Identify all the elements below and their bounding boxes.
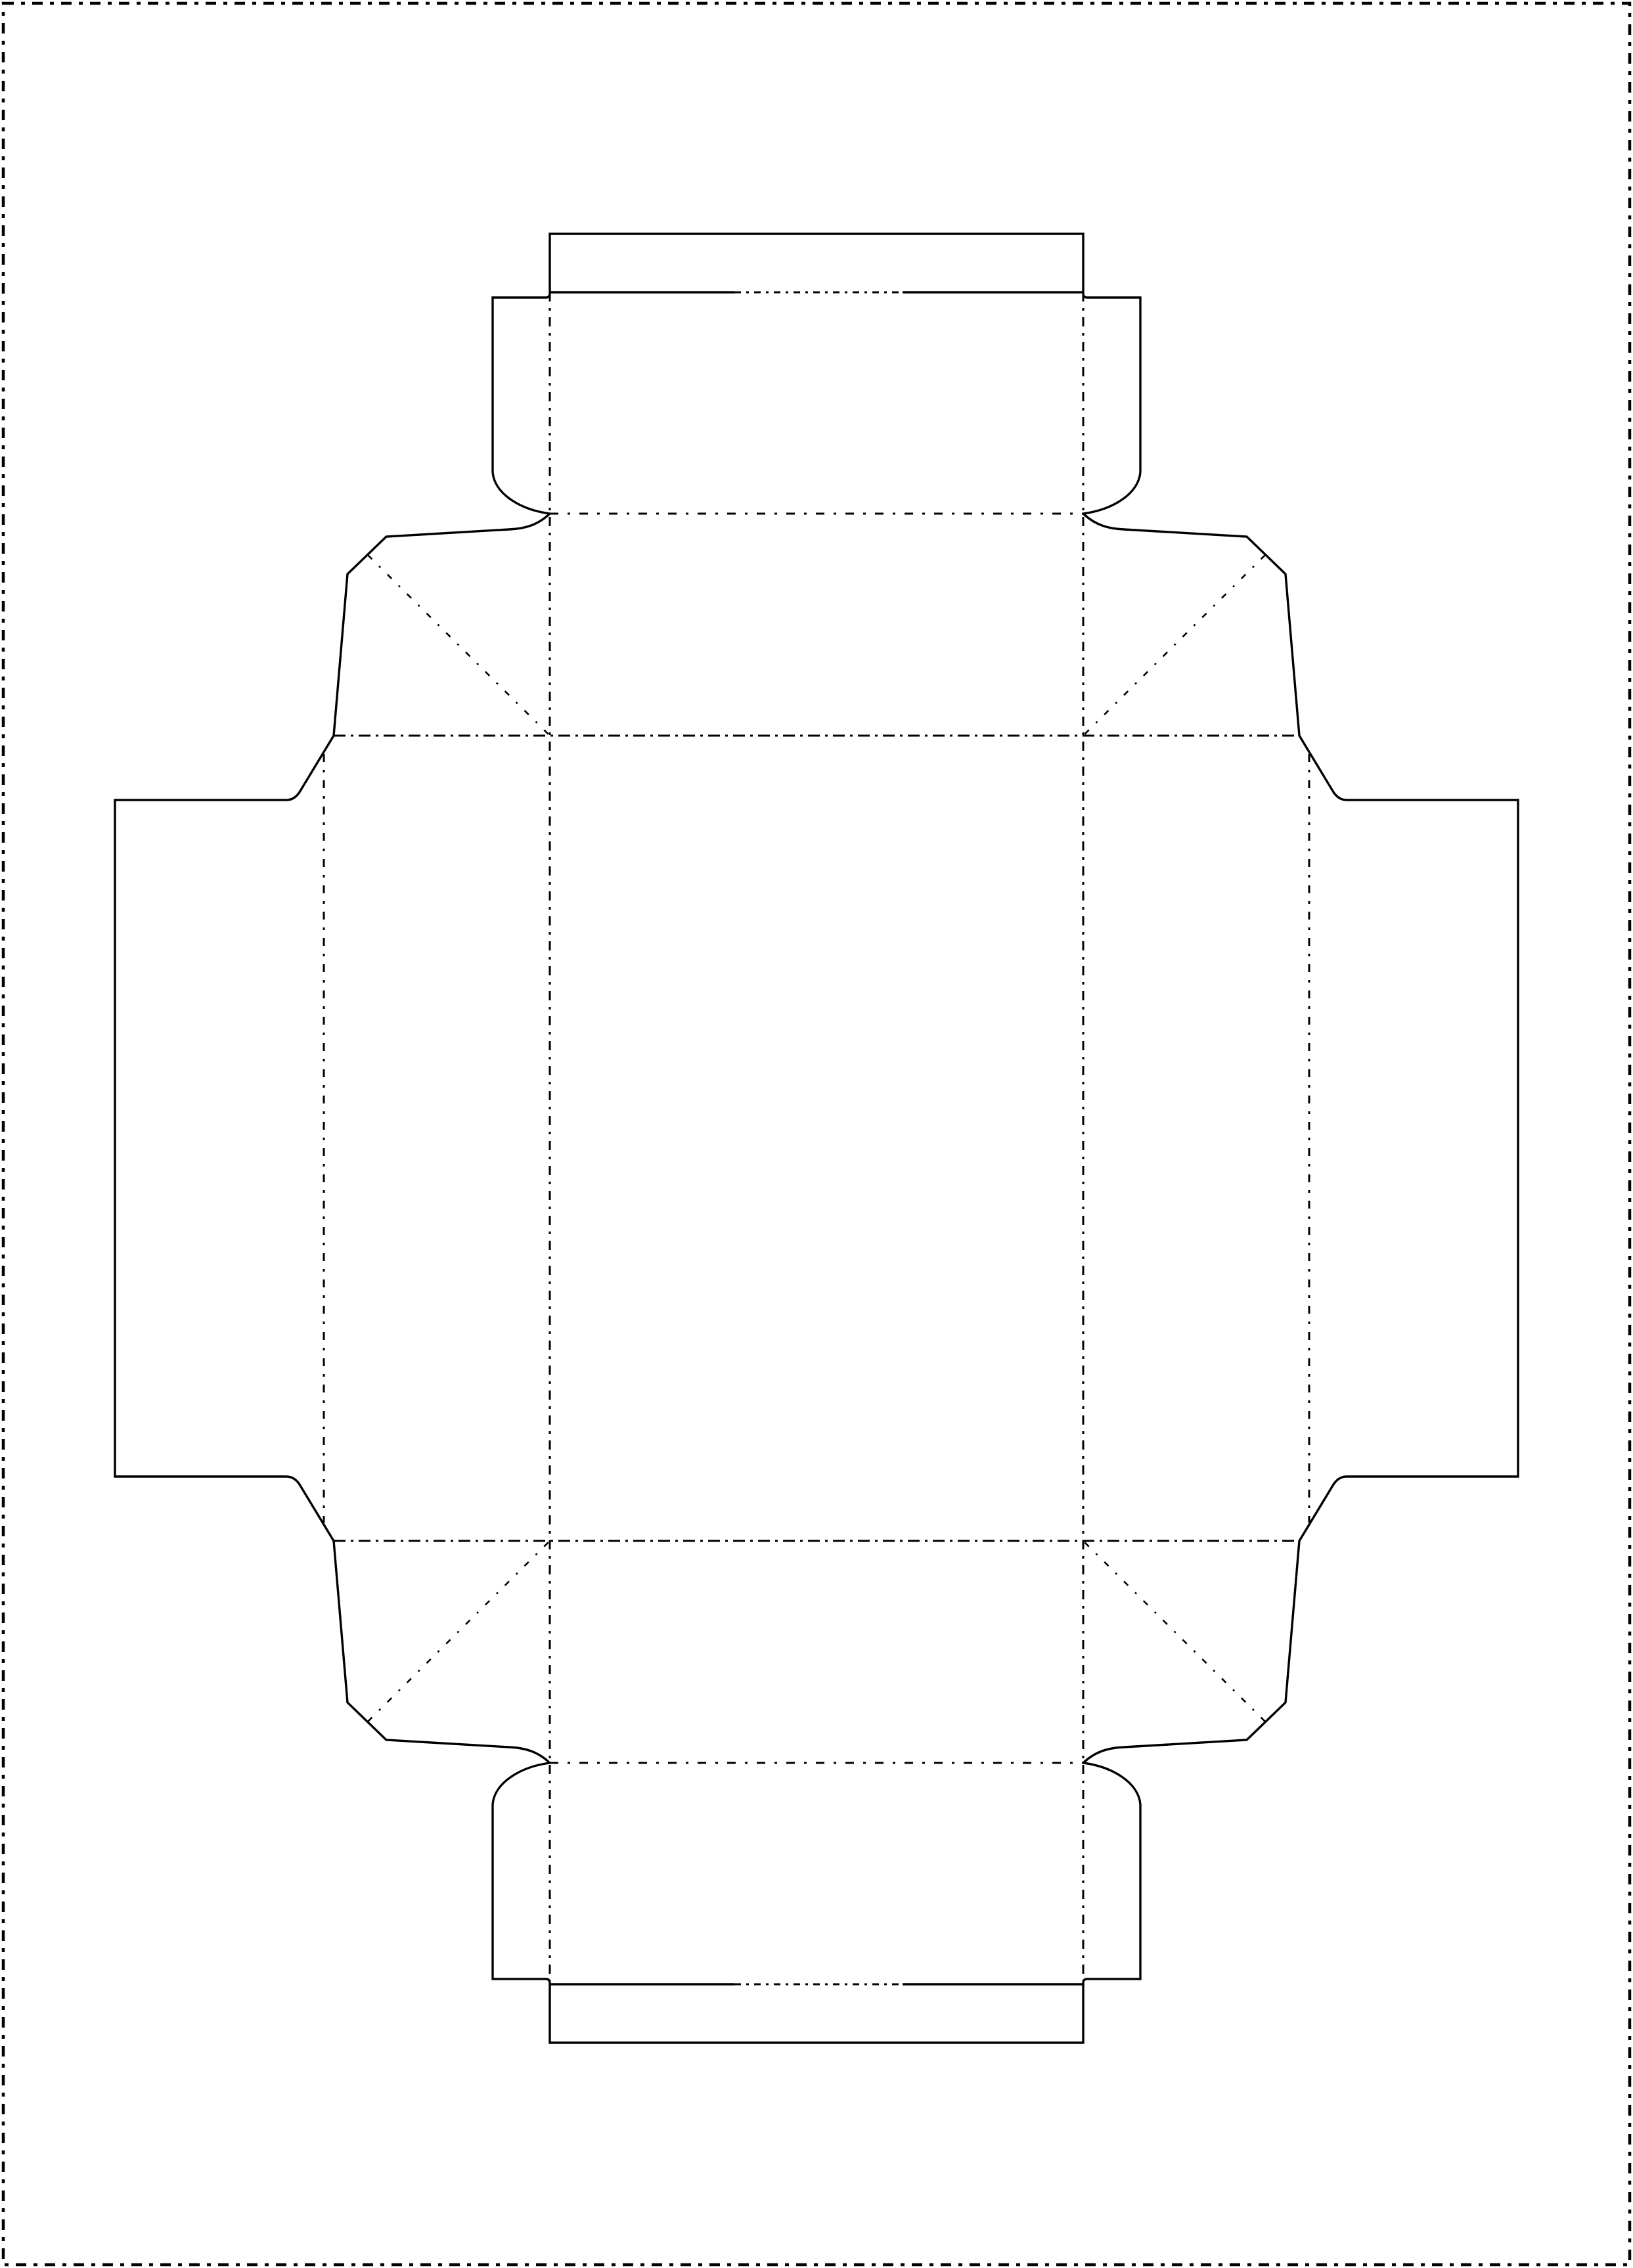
bottom-panel-outline-cut [493, 1804, 1140, 2043]
gusset-diagonal-bottom-right [1083, 1541, 1265, 1722]
top-ear-curve-right-cut [1083, 472, 1140, 514]
dieline-canvas [0, 0, 1633, 2268]
bottom-ear-curve-right-cut [1083, 1763, 1140, 1804]
right-arm-outline-cut [1083, 514, 1518, 1763]
gusset-diagonal-bottom-left [368, 1541, 550, 1722]
top-panel-outline-cut [493, 234, 1140, 472]
top-ear-curve-left-cut [493, 472, 550, 514]
dieline-svg [0, 0, 1633, 2268]
gusset-diagonal-top-right [1083, 555, 1265, 736]
bottom-ear-curve-left-cut [493, 1763, 550, 1804]
page-border [3, 3, 1630, 2265]
left-arm-outline-cut [115, 514, 550, 1763]
gusset-diagonal-top-left [368, 555, 550, 736]
